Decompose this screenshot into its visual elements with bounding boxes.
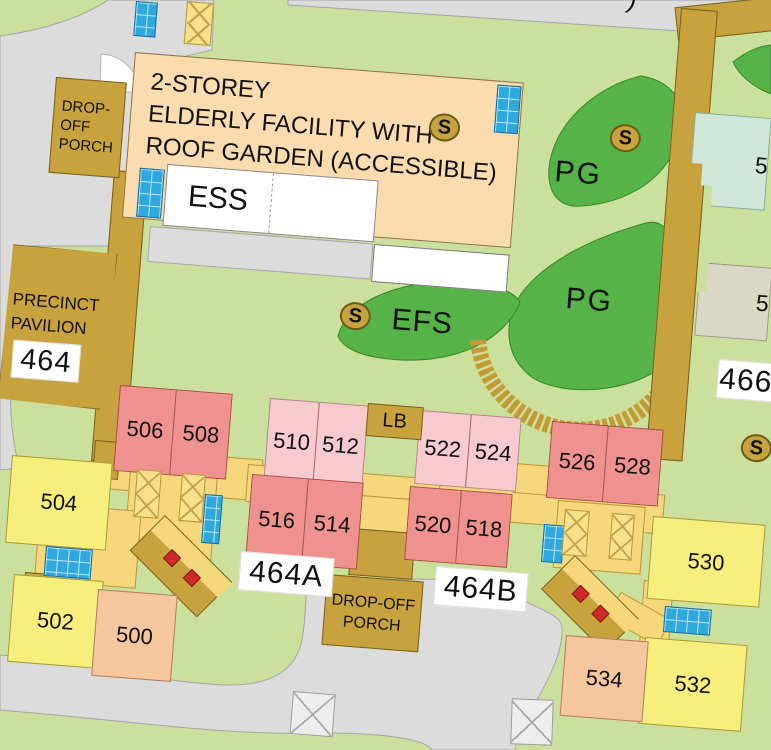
dropoff-porch-center-label: DROP-OFFPORCH bbox=[329, 589, 416, 637]
stair-core bbox=[184, 1, 214, 46]
building-unit-526: 526 bbox=[547, 422, 607, 501]
pedestrian-crossing bbox=[290, 691, 336, 737]
empty-room bbox=[268, 173, 378, 241]
corner-leaf bbox=[733, 45, 771, 94]
lift-lobby bbox=[201, 494, 223, 544]
ess-room: ESS bbox=[164, 165, 273, 233]
elderly-facility-building: 2-STOREYELDERLY FACILITY WITHROOF GARDEN… bbox=[122, 52, 524, 248]
building-unit-506: 506 bbox=[114, 386, 175, 474]
building-unit-516: 516 bbox=[246, 475, 307, 564]
lift-lobby bbox=[136, 168, 165, 219]
building-unit-504: 504 bbox=[5, 455, 113, 551]
building-unit-510: 510 bbox=[265, 399, 319, 484]
building-unit-532: 532 bbox=[638, 637, 748, 732]
building-unit-528: 528 bbox=[601, 426, 662, 505]
dropoff-porch-center: DROP-OFFPORCH bbox=[321, 574, 423, 652]
block-526-528: 526 528 bbox=[546, 421, 664, 507]
lift-lobby bbox=[44, 546, 93, 580]
block-520-518: 520 518 bbox=[404, 486, 512, 568]
building-unit-500: 500 bbox=[91, 589, 178, 682]
building-unit-512: 512 bbox=[312, 403, 367, 488]
site-plan-map: DROP- OFFPORCH PRECINCTPAVILION 464 2-ST… bbox=[0, 0, 771, 750]
playground-label-upper: PG bbox=[553, 155, 603, 193]
lift-lobby bbox=[663, 606, 712, 636]
stair-core bbox=[133, 469, 162, 519]
building-unit-502: 502 bbox=[7, 574, 104, 669]
block-label-464: 464 bbox=[11, 340, 82, 383]
building-partial-label: 5 bbox=[755, 290, 770, 318]
stair-core bbox=[608, 513, 635, 561]
pedestrian-crossing bbox=[510, 698, 554, 745]
building-unit-520: 520 bbox=[405, 487, 460, 563]
stair-core bbox=[561, 509, 590, 557]
block-label-464a: 464A bbox=[238, 551, 335, 597]
block-506-508: 506 508 bbox=[113, 385, 232, 480]
dropoff-porch-west-label: DROP- OFFPORCH bbox=[58, 97, 124, 159]
building-partial-label: 5 bbox=[754, 152, 769, 180]
building-unit-514: 514 bbox=[301, 479, 363, 568]
lift-lobby bbox=[494, 85, 522, 135]
block-label-466: 466 bbox=[716, 359, 771, 402]
efs-label: EFS bbox=[390, 303, 454, 342]
lift-lobby bbox=[133, 1, 158, 38]
precinct-pavilion: PRECINCTPAVILION 464 bbox=[0, 244, 118, 410]
building-unit-522: 522 bbox=[415, 411, 470, 487]
building-unit-530: 530 bbox=[646, 516, 765, 608]
stair-core bbox=[178, 473, 206, 523]
dropoff-porch-west: DROP- OFFPORCH bbox=[48, 77, 126, 178]
block-522-524: 522 524 bbox=[414, 410, 521, 492]
building-unit-534: 534 bbox=[560, 635, 649, 722]
building-unit-524: 524 bbox=[465, 415, 521, 491]
block-label-464b: 464B bbox=[433, 566, 529, 612]
block-510-512: 510 512 bbox=[263, 398, 368, 489]
letterbox: LB bbox=[365, 403, 423, 440]
building-unit-518: 518 bbox=[455, 491, 511, 567]
building-unit-508: 508 bbox=[169, 390, 231, 478]
precinct-pavilion-label: PRECINCTPAVILION bbox=[10, 287, 100, 342]
playground-label-lower: PG bbox=[564, 282, 614, 320]
